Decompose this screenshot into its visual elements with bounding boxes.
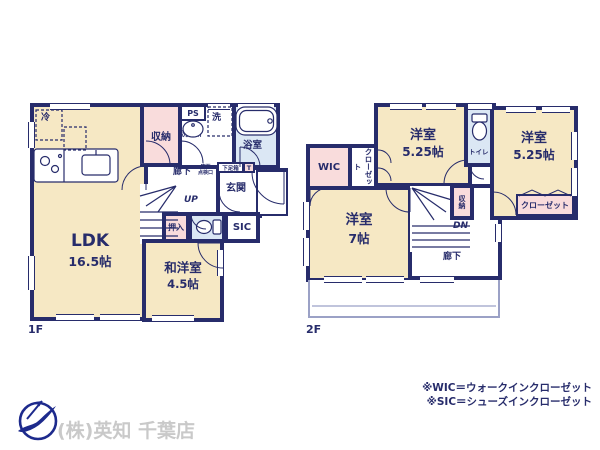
bedroom2-size: 5.25帖 [490,146,578,163]
window-icon [324,276,362,283]
window-icon [390,103,422,110]
room-1f-ldk [30,103,148,321]
floor1-label: 1F [28,324,43,336]
window-icon [50,103,90,110]
shoebox-box: 下足箱 [217,162,244,173]
window-icon [468,103,492,110]
bedroom2-label-block: 洋室 5.25帖 [490,127,578,163]
window-icon [366,276,404,283]
room-2f-storage: 収納 [450,184,474,220]
room-2f-wic: WIC [306,144,352,190]
bedroom1-label-block: 洋室 5.25帖 [374,124,472,160]
bedroom3-label-block: 洋室 7帖 [306,208,412,247]
t-box: T [243,162,255,173]
bedroom1-size: 5.25帖 [374,143,472,160]
bedroom3-size: 7帖 [306,228,412,247]
room-1f-storage: 収納 [140,103,182,167]
ldk-name: LDK [48,231,132,251]
window-icon [506,106,536,113]
window-icon [56,314,94,321]
ldk-label-block: LDK 16.5帖 [48,231,132,270]
up-label: UP [184,196,198,206]
storage-label: 収納 [151,128,171,143]
room-1f-bathroom [232,103,280,169]
floor-plan-canvas: 収納 押入 SIC 下足箱 T PS WIC クローゼット 収納 クローゼット … [0,0,600,450]
note-sic: ※SIC＝シューズインクローゼット [300,395,592,409]
window-icon [571,168,578,196]
fridge-label: 冷 [41,114,50,124]
ps-label: PS [187,109,199,118]
room-2f-closet: クローゼット [516,194,574,216]
wic-label: WIC [318,162,340,173]
dn-label: DN [453,222,468,232]
footnotes: ※WIC＝ウォークインクローゼット ※SIC＝シューズインクローゼット [300,381,592,409]
company-name: (株)英知 千葉店 [57,416,195,443]
washitsu-name: 和洋室 [142,257,224,276]
note-wic: ※WIC＝ウォークインクローゼット [300,381,592,395]
window-icon [420,276,454,283]
closet-label: クローゼット [521,200,569,211]
entrance-label: 玄関 [226,183,246,194]
room-1f-sic: SIC [224,212,260,243]
t-label: T [247,164,251,172]
washroom-label: 洗面所 [181,131,202,139]
entrance-porch [258,168,288,216]
closet-vertical-label: クローゼット [352,148,374,186]
oshiire-label: 押入 [168,222,184,233]
bath-label: 浴室 [243,141,262,151]
window-icon [28,256,35,290]
window-icon [28,122,35,148]
washitsu-label-block: 和洋室 4.5帖 [142,257,224,292]
floor2-label: 2F [306,324,321,336]
shoebox-label: 下足箱 [222,164,239,172]
window-icon [238,103,274,110]
washitsu-size: 4.5帖 [142,276,224,292]
window-icon [152,315,194,322]
storage-2f-label: 収納 [457,195,467,209]
ldk-size: 16.5帖 [48,251,132,270]
window-icon [426,103,456,110]
company-logo-icon [12,393,62,445]
window-icon [100,314,140,321]
window-icon [495,224,502,242]
window-icon [208,103,230,110]
bedroom3-name: 洋室 [306,208,412,228]
balcony [308,280,500,318]
ps-box: PS [180,105,206,121]
hall-2f-label: 廊下 [443,253,461,263]
sic-label: SIC [233,222,251,233]
hall-1f-label: 廊下 [173,168,191,178]
window-icon [542,106,570,113]
bedroom2-name: 洋室 [490,127,578,146]
laundry-label: 洗 [212,114,221,124]
underfloor-hatch-label: 床下 点検口 [198,165,213,176]
toilet-2f-label: トイレ [469,149,489,156]
bedroom1-name: 洋室 [374,124,472,143]
